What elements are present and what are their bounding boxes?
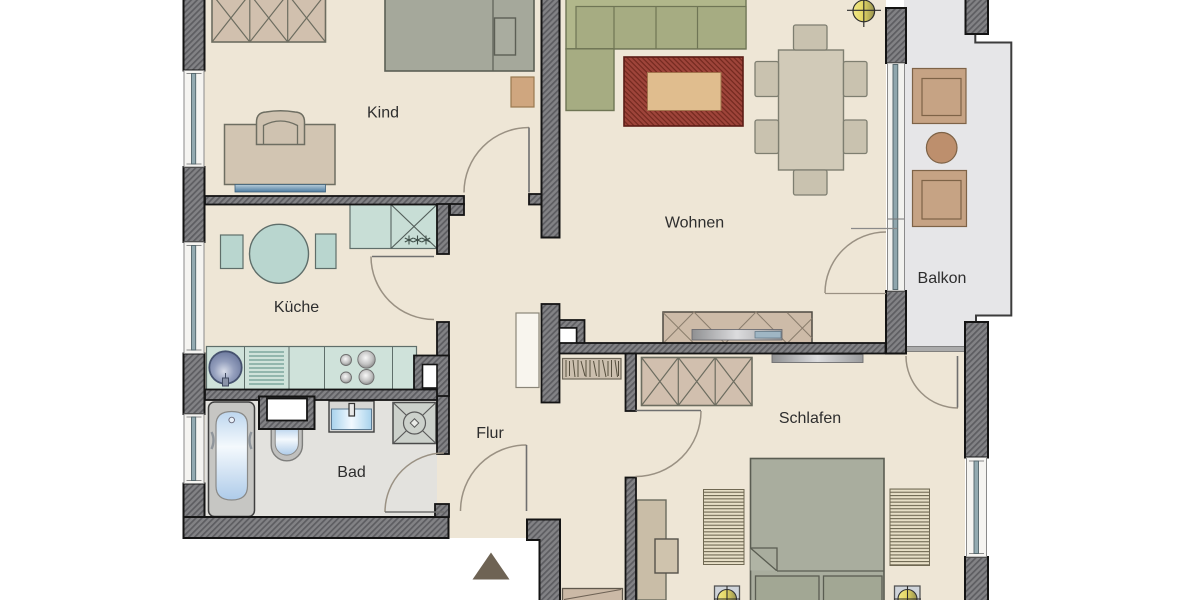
- svg-text:Bad: Bad: [337, 464, 365, 481]
- svg-text:Küche: Küche: [274, 299, 319, 316]
- svg-text:Balkon: Balkon: [918, 270, 967, 287]
- svg-text:Wohnen: Wohnen: [665, 215, 724, 232]
- svg-text:Kind: Kind: [367, 105, 399, 122]
- svg-text:Flur: Flur: [476, 425, 504, 442]
- svg-text:Schlafen: Schlafen: [779, 410, 841, 427]
